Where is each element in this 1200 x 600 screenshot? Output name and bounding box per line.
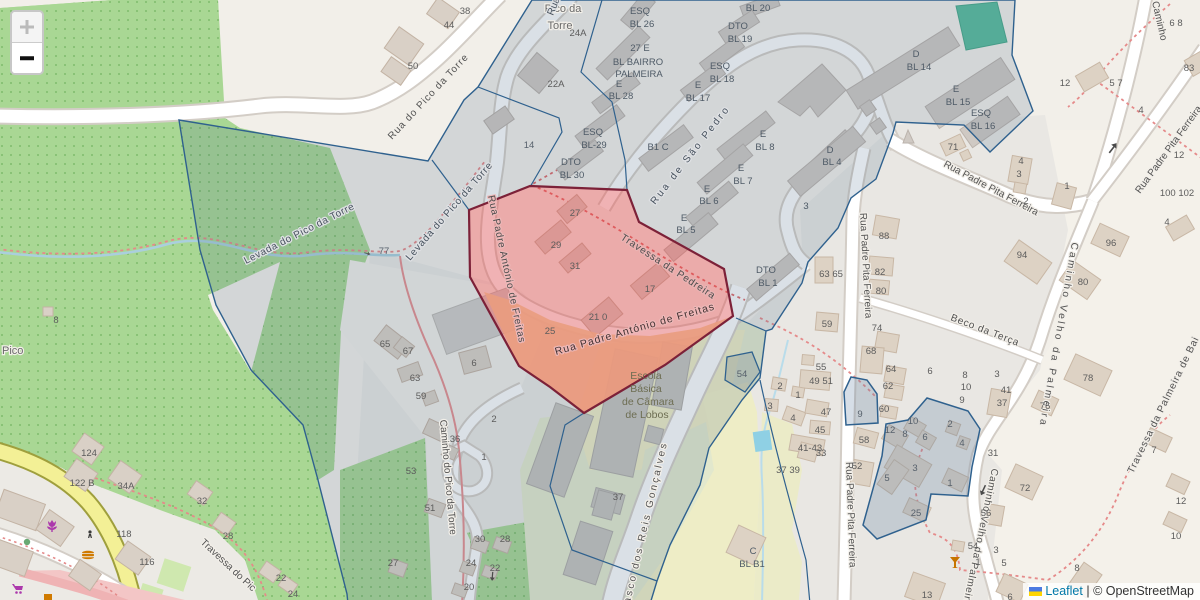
svg-text:8: 8 — [53, 315, 58, 326]
svg-text:E: E — [681, 213, 687, 224]
svg-text:DTO: DTO — [561, 157, 581, 168]
svg-text:49 51: 49 51 — [809, 376, 833, 387]
svg-text:Escola: Escola — [630, 370, 662, 382]
svg-text:ESQ: ESQ — [583, 127, 603, 138]
svg-text:10: 10 — [1171, 531, 1182, 542]
svg-text:6 8: 6 8 — [1169, 18, 1182, 29]
svg-text:E: E — [953, 84, 959, 95]
svg-text:BL 18: BL 18 — [710, 74, 734, 85]
svg-text:BL B1: BL B1 — [739, 559, 765, 570]
svg-text:DTO: DTO — [756, 265, 776, 276]
svg-text:E: E — [695, 80, 701, 91]
svg-text:116: 116 — [139, 557, 154, 568]
svg-text:68: 68 — [866, 346, 877, 357]
svg-text:96: 96 — [1106, 238, 1117, 249]
svg-text:12: 12 — [1060, 78, 1071, 89]
svg-text:BL 20: BL 20 — [746, 3, 770, 14]
svg-text:59: 59 — [822, 319, 833, 330]
svg-text:45: 45 — [815, 425, 826, 436]
svg-text:37 39: 37 39 — [776, 465, 800, 476]
svg-text:4: 4 — [1018, 156, 1023, 167]
svg-text:Básica: Básica — [630, 383, 662, 395]
svg-text:50: 50 — [408, 61, 419, 72]
svg-text:BL 19: BL 19 — [728, 34, 752, 45]
svg-text:24: 24 — [288, 589, 299, 600]
svg-text:74: 74 — [872, 323, 883, 334]
svg-text:24A: 24A — [570, 28, 588, 39]
svg-text:118: 118 — [116, 529, 131, 540]
svg-text:E: E — [704, 184, 710, 195]
svg-text:12: 12 — [1174, 150, 1185, 161]
svg-text:1: 1 — [795, 390, 800, 401]
svg-text:58: 58 — [859, 435, 870, 446]
svg-text:88: 88 — [879, 231, 890, 242]
svg-text:BL 8: BL 8 — [755, 142, 774, 153]
svg-text:62: 62 — [883, 381, 894, 392]
svg-text:27: 27 — [388, 558, 399, 569]
svg-text:14: 14 — [524, 140, 535, 151]
svg-text:3: 3 — [912, 463, 917, 474]
svg-text:ESQ: ESQ — [630, 6, 650, 17]
svg-text:122 B: 122 B — [70, 478, 95, 489]
svg-text:52: 52 — [852, 461, 863, 472]
svg-text:1: 1 — [947, 478, 952, 489]
svg-text:56: 56 — [981, 508, 992, 519]
svg-text:22: 22 — [490, 563, 501, 574]
svg-text:41: 41 — [1001, 385, 1012, 396]
svg-text:76: 76 — [1040, 401, 1051, 412]
svg-text:3: 3 — [994, 369, 999, 380]
svg-text:3: 3 — [1016, 169, 1021, 180]
svg-text:51: 51 — [425, 503, 436, 514]
svg-text:30: 30 — [475, 534, 486, 545]
svg-text:6: 6 — [922, 432, 927, 443]
svg-text:28: 28 — [500, 534, 511, 545]
svg-text:77: 77 — [379, 246, 390, 257]
svg-text:E: E — [738, 163, 744, 174]
svg-text:ESQ: ESQ — [971, 108, 991, 119]
svg-text:5: 5 — [1001, 558, 1006, 569]
svg-text:BL 30: BL 30 — [560, 170, 584, 181]
svg-text:54: 54 — [968, 541, 979, 552]
svg-text:C: C — [750, 546, 757, 557]
svg-text:21 0: 21 0 — [589, 312, 608, 323]
svg-text:17: 17 — [645, 284, 656, 295]
svg-text:3: 3 — [993, 545, 998, 556]
svg-text:54: 54 — [737, 369, 748, 380]
svg-text:63: 63 — [410, 373, 421, 384]
svg-text:DTO: DTO — [728, 21, 748, 32]
svg-text:25: 25 — [545, 326, 556, 337]
svg-text:BL 14: BL 14 — [907, 62, 931, 73]
svg-text:8: 8 — [902, 429, 907, 440]
svg-text:2: 2 — [491, 414, 496, 425]
svg-text:28: 28 — [223, 531, 234, 542]
svg-text:B1 C: B1 C — [647, 142, 668, 153]
svg-text:BL 4: BL 4 — [822, 157, 841, 168]
svg-text:22A: 22A — [548, 79, 566, 90]
svg-text:PALMEIRA: PALMEIRA — [615, 69, 663, 80]
svg-text:13: 13 — [922, 590, 933, 600]
svg-text:22: 22 — [276, 573, 287, 584]
svg-text:44: 44 — [444, 20, 455, 31]
svg-text:38: 38 — [460, 6, 471, 17]
svg-text:8: 8 — [1074, 563, 1079, 574]
svg-text:32: 32 — [197, 496, 208, 507]
svg-text:4: 4 — [959, 438, 964, 449]
svg-text:6: 6 — [927, 366, 932, 377]
svg-text:BL 28: BL 28 — [609, 91, 633, 102]
svg-text:37: 37 — [613, 492, 624, 503]
svg-text:80: 80 — [1078, 277, 1089, 288]
svg-text:de Câmara: de Câmara — [622, 396, 674, 408]
svg-text:34A: 34A — [118, 481, 136, 492]
svg-text:47: 47 — [821, 407, 832, 418]
svg-text:4: 4 — [1164, 217, 1169, 228]
svg-text:10: 10 — [908, 416, 919, 427]
svg-text:D: D — [913, 49, 920, 60]
svg-text:37: 37 — [997, 398, 1008, 409]
svg-text:27 E: 27 E — [630, 43, 650, 54]
svg-text:33: 33 — [816, 448, 827, 459]
svg-text:5 7: 5 7 — [1109, 78, 1122, 89]
svg-text:67: 67 — [403, 346, 414, 357]
svg-text:7: 7 — [1151, 445, 1156, 456]
svg-text:2: 2 — [777, 381, 782, 392]
svg-text:59: 59 — [416, 391, 427, 402]
svg-text:BL 7: BL 7 — [733, 176, 752, 187]
svg-text:BL BAIRRO: BL BAIRRO — [613, 57, 663, 68]
svg-text:BL-29: BL-29 — [581, 140, 606, 151]
svg-text:31: 31 — [988, 448, 999, 459]
svg-text:6: 6 — [1007, 592, 1012, 600]
svg-text:BL 15: BL 15 — [946, 97, 970, 108]
svg-text:71: 71 — [948, 142, 959, 153]
svg-text:64: 64 — [886, 364, 897, 375]
svg-text:BL 17: BL 17 — [686, 93, 710, 104]
svg-text:12: 12 — [885, 425, 896, 436]
svg-text:82: 82 — [875, 267, 886, 278]
svg-text:2: 2 — [1023, 196, 1028, 207]
svg-text:1: 1 — [1064, 181, 1069, 192]
svg-text:60: 60 — [879, 404, 890, 415]
svg-text:72: 72 — [1020, 483, 1031, 494]
svg-text:55: 55 — [816, 362, 827, 373]
svg-text:1: 1 — [975, 557, 980, 568]
svg-text:78: 78 — [1083, 373, 1094, 384]
svg-text:D: D — [827, 145, 834, 156]
svg-text:5: 5 — [884, 473, 889, 484]
svg-text:BL 16: BL 16 — [971, 121, 995, 132]
svg-text:4: 4 — [790, 413, 795, 424]
svg-text:63 65: 63 65 — [819, 269, 843, 280]
svg-text:100 102: 100 102 — [1160, 188, 1194, 199]
svg-text:1: 1 — [481, 452, 486, 463]
svg-text:24: 24 — [466, 558, 477, 569]
svg-text:94: 94 — [1017, 250, 1028, 261]
svg-text:BL 5: BL 5 — [676, 225, 695, 236]
svg-text:E: E — [760, 129, 766, 140]
svg-text:27: 27 — [570, 208, 581, 219]
svg-text:de Lobos: de Lobos — [625, 409, 668, 421]
svg-text:124: 124 — [81, 448, 97, 459]
svg-text:BL 6: BL 6 — [699, 196, 718, 207]
svg-text:20: 20 — [464, 582, 475, 593]
svg-text:31: 31 — [570, 261, 581, 272]
svg-text:29: 29 — [551, 240, 562, 251]
svg-text:6: 6 — [471, 358, 476, 369]
svg-text:4: 4 — [1138, 105, 1143, 116]
svg-text:53: 53 — [406, 466, 417, 477]
svg-text:80: 80 — [876, 286, 887, 297]
svg-text:25: 25 — [911, 508, 922, 519]
svg-text:36: 36 — [450, 434, 461, 445]
svg-text:65: 65 — [380, 339, 391, 350]
svg-text:3: 3 — [767, 401, 772, 412]
svg-text:E: E — [616, 79, 622, 90]
svg-text:10: 10 — [961, 382, 972, 393]
svg-text:9: 9 — [959, 395, 964, 406]
svg-text:BL 26: BL 26 — [630, 19, 654, 30]
svg-text:2: 2 — [947, 419, 952, 430]
svg-text:9: 9 — [857, 409, 862, 420]
svg-text:83: 83 — [1184, 63, 1195, 74]
svg-text:3: 3 — [803, 201, 808, 212]
svg-text:ESQ: ESQ — [710, 61, 730, 72]
svg-text:8: 8 — [962, 370, 967, 381]
svg-text:Pico: Pico — [2, 345, 23, 357]
svg-text:BL 1: BL 1 — [758, 278, 777, 289]
svg-text:12: 12 — [1176, 496, 1187, 507]
